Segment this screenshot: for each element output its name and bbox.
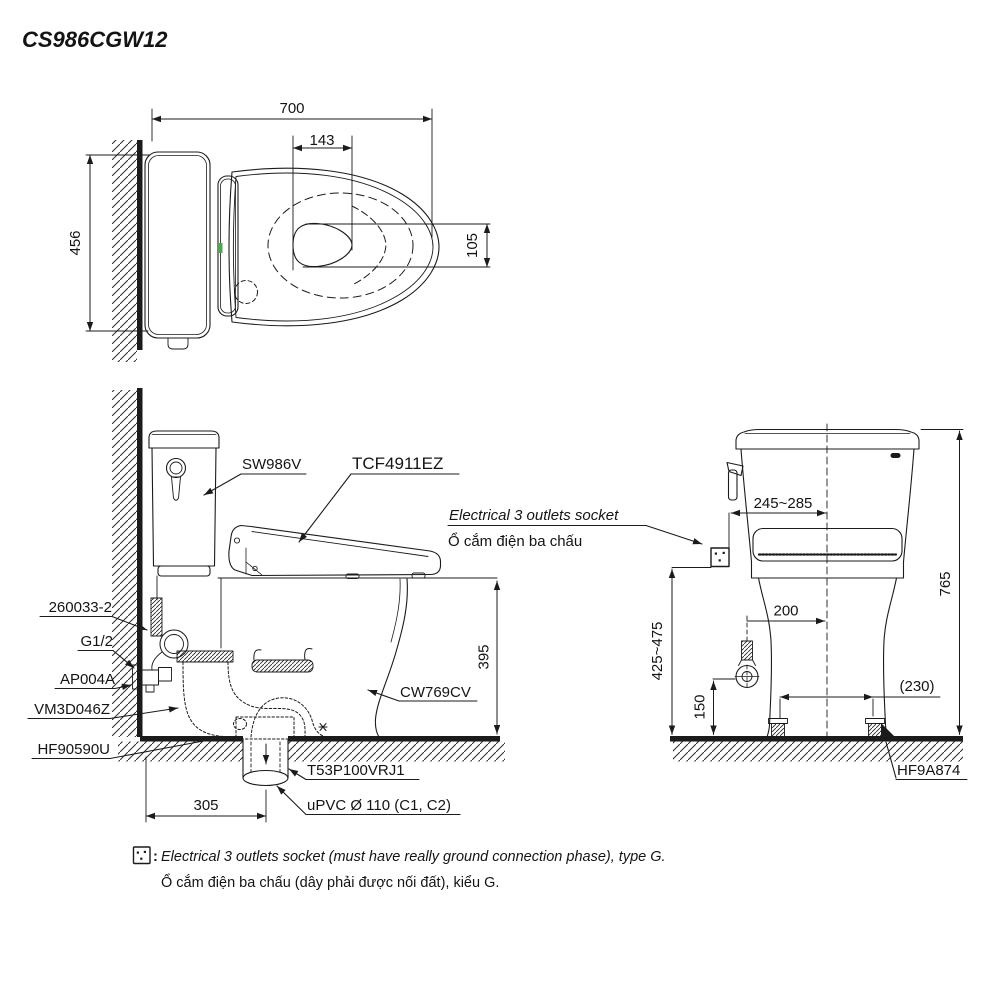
dim-143: 143 [309,132,334,149]
tank-lever [727,463,743,476]
dim-245-285: 245~285 [754,495,813,512]
pedestal-left [759,578,772,737]
floor-line-right [288,736,500,742]
pedestal-right [883,578,896,737]
wall-line [137,140,143,350]
footer-line-en: Electrical 3 outlets socket (must have r… [161,849,666,865]
dim-105: 105 [464,233,481,258]
footer-socket-icon [134,847,151,864]
socket-box [711,548,729,567]
footer-colon: : [153,849,158,865]
weir-mark [319,724,327,731]
wall-hatch [112,140,137,362]
label-bowl: CW769CV [400,684,471,701]
bowl-outline [229,168,439,326]
brand-mark [891,453,901,458]
socket-callout-vi: Ổ cắm điện ba chấu [448,532,582,550]
drain-pipe-cylinder [243,771,288,786]
side-view: SW986V TCF4911EZ 260033-2 G1/2 AP004A VM… [28,388,505,822]
socket-box-dots [715,552,725,562]
label-flange: T53P100VRJ1 [307,762,405,779]
dim-230: (230) [899,678,934,695]
dim-150: 150 [692,694,709,719]
label-tank: SW986V [242,456,301,473]
bowl-profile [375,579,407,737]
page-title: CS986CGW12 [22,27,168,52]
braided-hose [151,598,162,636]
spec-sheet: CS986CGW12 [0,0,1000,1000]
label-drain-pipe: uPVC Ø 110 (C1, C2) [307,797,451,814]
footer-note: : Electrical 3 outlets socket (must have… [134,847,666,891]
label-washlet: TCF4911EZ [352,454,443,473]
label-supply-hose: 260033-2 [49,599,112,616]
tank-panel [753,529,902,562]
floor-hatch [118,742,243,762]
dim-765: 765 [937,571,954,596]
wall-hatch-side [112,390,137,737]
tank-lid-front [736,430,919,450]
water-surface [293,223,352,266]
technical-drawing: CS986CGW12 [0,0,1000,1000]
bolt-cap-left [772,724,785,738]
dim-200: 200 [773,603,798,620]
label-angle-valve: AP004A [60,671,115,688]
socket-callout: Electrical 3 outlets socket Ổ cắm điện b… [448,507,702,550]
front-view-linework [670,424,967,780]
top-view-linework [86,109,490,362]
seat-opening-dashed [268,193,413,298]
label-bolt-kit: HF9A874 [897,762,960,779]
floor-hatch-front [673,742,963,762]
flush-knob [167,459,186,478]
dim-395: 395 [476,644,493,669]
tank-body-side [152,448,216,566]
label-thread: G1/2 [80,633,113,650]
dim-700: 700 [279,100,304,117]
label-fixing: HF90590U [37,741,110,758]
bolt-cap-right [869,724,882,738]
tank-top [145,152,210,338]
footer-line-vi: Ổ cắm điện ba chấu (dây phải được nối đấ… [161,873,499,891]
floor-line-front [670,736,963,742]
shim-wedge [881,723,895,737]
front-view: 245~285 200 765 425~475 150 (230) HF9A87… [649,424,967,780]
tank-lid-side [149,431,219,448]
top-view: 700 143 456 105 [67,100,490,362]
trapway-hidden-lines [183,662,327,739]
dim-425-475: 425~475 [649,622,666,681]
socket-callout-en: Electrical 3 outlets socket [449,507,619,524]
dim-305: 305 [193,797,218,814]
label-seal: VM3D046Z [34,701,110,718]
power-led-mark [219,243,223,253]
dim-456: 456 [67,230,84,255]
